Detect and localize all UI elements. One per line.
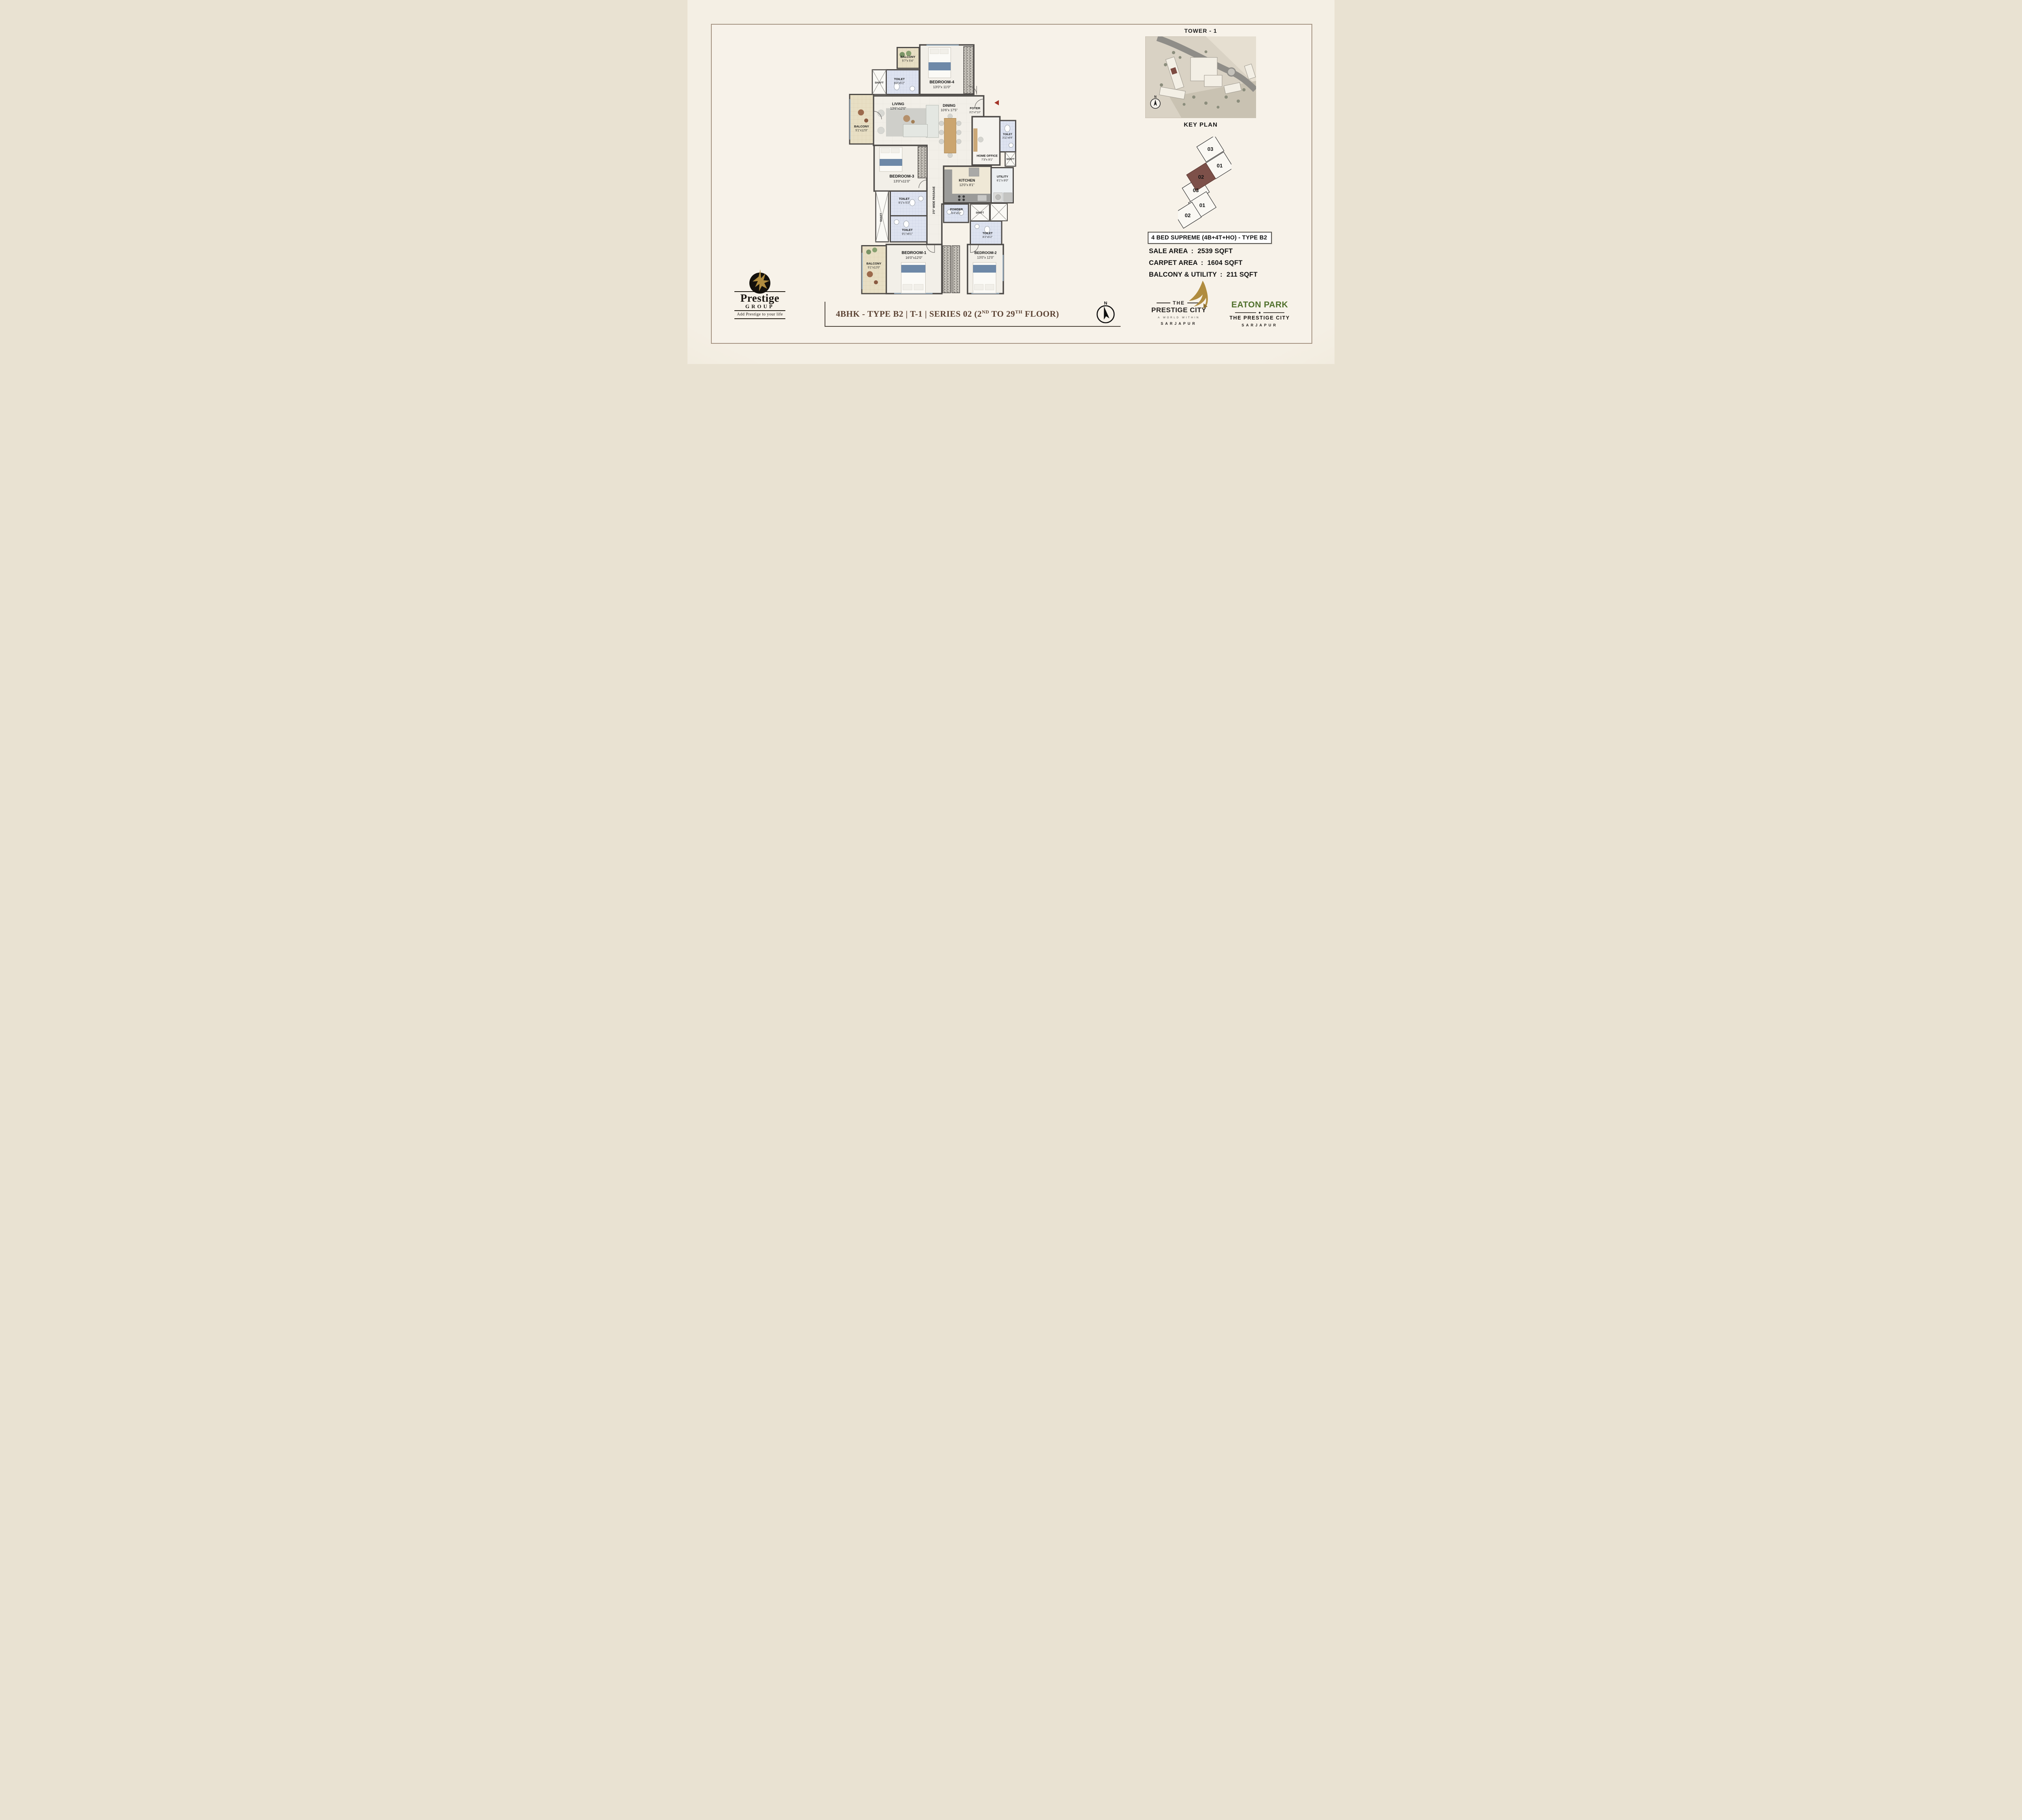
entry-arrow: [994, 100, 999, 106]
label-toilet-mid-upper: TOILET: [899, 197, 910, 201]
prestige-city-logo: THE PRESTIGE CITY A WORLD WITHIN SARJAPU…: [1144, 286, 1213, 326]
label-home-office: HOME OFFICE: [977, 154, 998, 158]
footer-sup-nd: ND: [982, 309, 989, 315]
pc-place: SARJAPUR: [1144, 322, 1213, 326]
dims-bedroom-4: 13'0"x 11'0": [933, 85, 951, 89]
prestige-falcon-icon: [747, 269, 773, 294]
prestige-brand-text: Prestige: [734, 293, 785, 303]
label-utility: UTILITY: [997, 175, 1008, 178]
bed-bedroom-3: [880, 147, 902, 171]
unit-label-0: 03: [1208, 146, 1213, 152]
unit-stack-diagram: 03 01 02 03 01 02: [1178, 137, 1231, 229]
label-balcony-top: BALCONY: [900, 55, 915, 59]
spec-row-sale-area: SALE AREA:2539 SQFT: [1149, 248, 1270, 259]
bed-bedroom-2: [973, 262, 996, 293]
prestige-tagline: Add Prestige to your life: [734, 312, 785, 317]
bed-bedroom-1: [901, 262, 926, 293]
unit-label-1: 01: [1217, 163, 1223, 169]
brochure-page: BALCONY 5'7"x 5'4" TOILET 8'2"x5'2" SHAF…: [687, 0, 1335, 364]
spec-row-carpet-area: CARPET AREA:1604 SQFT: [1149, 259, 1270, 271]
dims-powder: 6'4"x5'2": [952, 212, 962, 215]
floor-plan: BALCONY 5'7"x 5'4" TOILET 8'2"x5'2" SHAF…: [845, 38, 1028, 299]
svg-text:N: N: [1104, 301, 1107, 306]
label-dining: DINING: [943, 104, 956, 108]
spec-row-balcony-utility: BALCONY & UTILITY:211 SQFT: [1149, 271, 1270, 283]
spec-rows: SALE AREA:2539 SQFT CARPET AREA:1604 SQF…: [1149, 248, 1270, 283]
north-compass-icon: N: [1094, 300, 1117, 325]
dims-foyer: 3'2"x7'10": [969, 111, 981, 114]
spec-value: 2539 SQFT: [1197, 248, 1233, 255]
label-living: LIVING: [892, 102, 904, 106]
keyplan-roundabout: [1227, 68, 1235, 76]
dims-balcony-top: 5'7"x 5'4": [902, 60, 914, 63]
dims-dining: 10'6"x 17'5": [941, 108, 958, 112]
balcony-bottom-tiles: [862, 246, 886, 294]
unit-label-2: 02: [1198, 174, 1204, 180]
dims-toilet-top: 8'2"x5'2": [894, 82, 905, 85]
label-shaft-top: SHAFT: [875, 82, 884, 85]
dims-utility: 6'1"x 8'0": [997, 180, 1009, 182]
dims-balcony-left: 5'1"x12'0": [855, 129, 868, 132]
dims-kitchen: 12'0"x 8'1": [959, 183, 974, 187]
label-balcony-bottom: BALCONY: [866, 262, 881, 265]
logo-divider: [734, 318, 785, 319]
bed-bedroom-4: [929, 48, 951, 78]
unit-label-5: 02: [1185, 212, 1191, 218]
spec-value: 211 SQFT: [1227, 271, 1258, 278]
keyplan-caption: KEY PLAN: [1145, 121, 1256, 128]
dims-bedroom-2: 13'0"x 12'0": [977, 256, 994, 260]
label-bedroom-4: BEDROOM-4: [929, 80, 954, 85]
spec-colon: :: [1191, 248, 1194, 255]
dims-balcony-bottom: 5'1"x12'0": [868, 267, 880, 269]
living-furniture: [878, 105, 939, 138]
label-shaft-right: SHAFT: [1007, 159, 1015, 161]
unit-label-4: 01: [1199, 202, 1205, 208]
dims-bedroom-3: 13'0"x11'0": [893, 179, 910, 183]
unit-label-3: 03: [1193, 187, 1199, 193]
logo-divider: [1263, 312, 1284, 313]
label-toilet-bed2: TOILET: [983, 232, 993, 235]
pc-the: THE: [1173, 300, 1185, 306]
logo-divider: [734, 310, 785, 311]
dims-toilet-ho: 3'11"x6'9": [1003, 137, 1013, 140]
label-bedroom-1: BEDROOM-1: [901, 251, 926, 255]
dims-toilet-mid-lower: 9'1"x6'1": [902, 233, 913, 236]
logo-divider: [1157, 303, 1170, 303]
label-bedroom-3: BEDROOM-3: [889, 174, 914, 179]
ep-sub: THE PRESTIGE CITY: [1224, 315, 1296, 321]
logo-divider: [1235, 312, 1256, 313]
gold-feather-icon: [1186, 280, 1208, 311]
spec-label: CARPET AREA: [1149, 259, 1198, 267]
spec-label: SALE AREA: [1149, 248, 1188, 255]
dims-bedroom-1: 16'0"x12'0": [905, 256, 922, 260]
ep-place: SARJAPUR: [1224, 323, 1296, 327]
pc-tagline: A WORLD WITHIN: [1144, 316, 1213, 319]
spec-label: BALCONY & UTILITY: [1149, 271, 1217, 278]
spec-colon: :: [1220, 271, 1223, 279]
label-bedroom-2: BEDROOM-2: [974, 251, 996, 255]
label-shaft-mid: SHAFT: [976, 212, 984, 214]
svg-text:N: N: [1154, 95, 1157, 99]
label-kitchen: KITCHEN: [959, 178, 975, 182]
key-plan-map: N: [1145, 36, 1256, 118]
dims-living: 13'6"x12'0": [890, 107, 906, 110]
dims-toilet-bed2: 8'2"x5'2": [983, 236, 993, 239]
label-passage: 3'5" WIDE PASSAGE: [933, 186, 936, 214]
label-powder: POWDER: [950, 208, 963, 211]
label-shaft-left: SHAFT: [880, 213, 883, 222]
label-balcony-left: BALCONY: [854, 125, 869, 128]
tower-title: TOWER - 1: [1145, 28, 1256, 34]
label-toilet-top: TOILET: [894, 77, 905, 81]
prestige-group-logo: Prestige GROUP Add Prestige to your life: [734, 269, 785, 320]
spec-value: 1604 SQFT: [1207, 259, 1242, 267]
dims-toilet-mid-upper: 9'1"x 5'2": [899, 202, 910, 205]
spec-colon: :: [1201, 259, 1203, 267]
footer-title-bar: 4BHK - TYPE B2 | T-1 | SERIES 02 (2ND TO…: [825, 302, 1121, 327]
label-toilet-ho: TOILET: [1003, 133, 1012, 136]
label-toilet-mid-lower: TOILET: [902, 228, 913, 232]
diamond-ornament-icon: ◆: [1258, 311, 1261, 314]
footer-title: 4BHK - TYPE B2 | T-1 | SERIES 02 (2ND TO…: [825, 309, 1059, 319]
label-foyer: FOYER: [970, 106, 980, 110]
eaton-park-logo: EATON PARK ◆ THE PRESTIGE CITY SARJAPUR: [1224, 300, 1296, 327]
spec-title: 4 BED SUPREME (4B+4T+HO) - TYPE B2: [1148, 232, 1272, 244]
dims-home-office: 7'3"x 9'1": [981, 159, 993, 161]
footer-sup-th: TH: [1015, 309, 1022, 315]
eaton-park-name: EATON PARK: [1224, 300, 1296, 310]
ep-divider-row: ◆: [1224, 311, 1296, 314]
prestige-group-text: GROUP: [734, 303, 785, 309]
balcony-left-tiles: [850, 95, 874, 144]
